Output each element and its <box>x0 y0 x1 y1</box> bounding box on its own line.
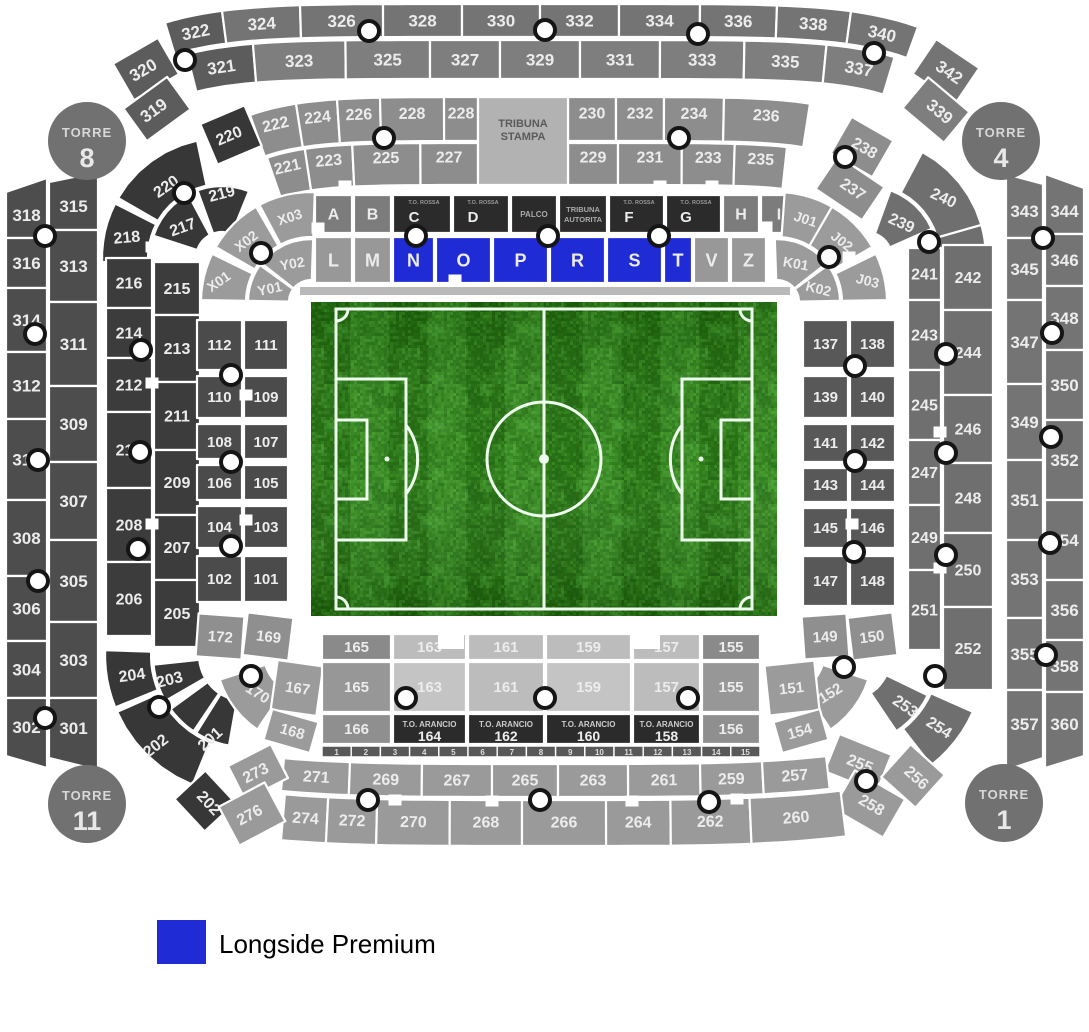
svg-text:163: 163 <box>417 679 442 696</box>
svg-text:143: 143 <box>813 477 838 494</box>
svg-text:M: M <box>365 250 380 270</box>
svg-text:211: 211 <box>164 409 190 426</box>
svg-text:335: 335 <box>771 52 800 72</box>
svg-text:229: 229 <box>580 150 607 167</box>
svg-text:205: 205 <box>164 606 191 623</box>
svg-text:2: 2 <box>364 748 369 757</box>
svg-text:325: 325 <box>373 50 401 69</box>
svg-text:159: 159 <box>576 679 601 696</box>
svg-text:TORRE: TORRE <box>62 125 112 140</box>
svg-text:224: 224 <box>303 108 331 128</box>
svg-text:167: 167 <box>284 679 311 699</box>
svg-text:270: 270 <box>400 814 427 831</box>
svg-text:245: 245 <box>911 398 938 415</box>
svg-text:139: 139 <box>813 389 838 406</box>
svg-text:324: 324 <box>247 14 277 35</box>
svg-text:327: 327 <box>451 51 479 70</box>
svg-text:227: 227 <box>436 150 463 167</box>
svg-text:PALCO: PALCO <box>520 210 547 219</box>
svg-text:228: 228 <box>399 106 426 123</box>
svg-text:330: 330 <box>487 12 515 31</box>
svg-text:248: 248 <box>955 491 982 508</box>
svg-text:218: 218 <box>113 228 141 247</box>
svg-text:1: 1 <box>996 805 1011 835</box>
svg-text:145: 145 <box>813 520 838 537</box>
svg-text:TORRE: TORRE <box>976 125 1026 140</box>
svg-text:347: 347 <box>1010 333 1038 352</box>
svg-text:106: 106 <box>207 475 232 492</box>
svg-text:309: 309 <box>59 415 87 434</box>
svg-text:TRIBUNA: TRIBUNA <box>498 118 548 130</box>
svg-text:247: 247 <box>911 465 938 482</box>
svg-text:360: 360 <box>1050 715 1078 734</box>
svg-text:329: 329 <box>526 51 554 70</box>
svg-text:312: 312 <box>12 376 40 395</box>
svg-text:8: 8 <box>79 143 94 173</box>
svg-text:306: 306 <box>12 600 40 619</box>
svg-text:147: 147 <box>813 573 838 590</box>
svg-text:TORRE: TORRE <box>62 788 112 803</box>
svg-text:R: R <box>571 250 584 270</box>
svg-text:334: 334 <box>645 12 674 31</box>
svg-text:155: 155 <box>718 639 743 656</box>
svg-text:T: T <box>673 250 684 270</box>
svg-text:268: 268 <box>473 815 500 832</box>
svg-text:225: 225 <box>373 150 400 168</box>
svg-text:216: 216 <box>116 276 143 293</box>
svg-text:215: 215 <box>164 281 191 298</box>
svg-text:235: 235 <box>747 151 775 170</box>
svg-text:T.O. ROSSA: T.O. ROSSA <box>623 200 654 206</box>
svg-text:T.O. ROSSA: T.O. ROSSA <box>408 200 439 206</box>
svg-text:326: 326 <box>327 12 356 31</box>
svg-text:TRIBUNA: TRIBUNA <box>566 205 600 214</box>
svg-text:344: 344 <box>1050 202 1079 221</box>
svg-text:313: 313 <box>59 257 87 276</box>
svg-text:357: 357 <box>1010 715 1038 734</box>
svg-text:208: 208 <box>116 518 143 535</box>
svg-text:138: 138 <box>860 336 885 353</box>
svg-text:150: 150 <box>858 627 885 647</box>
svg-text:266: 266 <box>551 815 578 832</box>
svg-text:274: 274 <box>292 810 320 829</box>
svg-text:243: 243 <box>911 328 938 345</box>
svg-text:10: 10 <box>595 748 604 757</box>
svg-text:AUTORITA: AUTORITA <box>564 215 603 224</box>
svg-text:261: 261 <box>651 772 678 789</box>
svg-text:I: I <box>777 207 781 224</box>
svg-text:7: 7 <box>510 748 515 757</box>
svg-text:112: 112 <box>207 337 231 354</box>
svg-text:105: 105 <box>253 475 278 492</box>
svg-text:352: 352 <box>1050 451 1078 470</box>
svg-text:250: 250 <box>955 563 982 580</box>
svg-text:137: 137 <box>813 336 838 353</box>
svg-text:252: 252 <box>955 641 982 658</box>
svg-text:165: 165 <box>344 639 369 656</box>
svg-text:333: 333 <box>688 51 716 70</box>
svg-text:6: 6 <box>480 748 485 757</box>
svg-text:305: 305 <box>59 572 87 591</box>
svg-text:111: 111 <box>254 337 277 354</box>
svg-text:231: 231 <box>637 150 664 167</box>
svg-text:108: 108 <box>207 434 232 451</box>
svg-text:14: 14 <box>712 748 721 757</box>
svg-text:P: P <box>514 250 526 270</box>
svg-text:272: 272 <box>339 812 366 830</box>
svg-text:353: 353 <box>1010 570 1038 589</box>
svg-text:101: 101 <box>253 571 278 588</box>
svg-text:TORRE: TORRE <box>979 787 1029 802</box>
svg-text:9: 9 <box>568 748 573 757</box>
svg-text:155: 155 <box>718 679 743 696</box>
svg-text:303: 303 <box>59 651 87 670</box>
svg-text:169: 169 <box>255 627 282 647</box>
svg-text:301: 301 <box>59 719 87 738</box>
svg-text:350: 350 <box>1050 376 1078 395</box>
svg-text:212: 212 <box>116 378 143 395</box>
svg-text:107: 107 <box>253 434 278 451</box>
svg-text:356: 356 <box>1050 601 1078 620</box>
svg-text:246: 246 <box>955 422 982 439</box>
svg-text:213: 213 <box>164 341 191 358</box>
svg-text:4: 4 <box>422 748 427 757</box>
svg-text:311: 311 <box>60 335 87 354</box>
svg-text:4: 4 <box>993 143 1008 173</box>
svg-text:226: 226 <box>345 106 372 124</box>
svg-text:260: 260 <box>782 809 810 828</box>
svg-text:304: 304 <box>12 661 41 680</box>
svg-text:H: H <box>735 207 747 224</box>
svg-text:102: 102 <box>207 571 232 588</box>
svg-text:104: 104 <box>207 519 233 536</box>
svg-text:11: 11 <box>73 806 102 836</box>
svg-text:140: 140 <box>860 389 885 406</box>
svg-text:161: 161 <box>493 639 518 656</box>
svg-text:264: 264 <box>625 814 652 831</box>
svg-text:Z: Z <box>743 250 754 270</box>
svg-text:A: A <box>328 207 340 224</box>
svg-text:T.O. ROSSA: T.O. ROSSA <box>467 200 498 206</box>
svg-text:1: 1 <box>334 748 339 757</box>
svg-text:141: 141 <box>813 435 838 452</box>
svg-text:323: 323 <box>285 51 314 71</box>
svg-text:249: 249 <box>911 530 938 547</box>
svg-text:207: 207 <box>164 540 191 557</box>
svg-text:267: 267 <box>444 772 471 789</box>
svg-text:269: 269 <box>372 772 399 790</box>
svg-text:262: 262 <box>697 813 724 831</box>
svg-text:N: N <box>407 250 420 270</box>
svg-text:209: 209 <box>164 475 191 492</box>
svg-text:318: 318 <box>12 206 40 225</box>
svg-text:263: 263 <box>580 773 607 790</box>
svg-text:328: 328 <box>408 12 436 31</box>
svg-text:271: 271 <box>302 768 330 787</box>
svg-text:3: 3 <box>393 748 398 757</box>
svg-text:G: G <box>680 209 692 226</box>
svg-text:230: 230 <box>579 106 606 123</box>
svg-text:11: 11 <box>624 748 633 757</box>
svg-text:251: 251 <box>911 603 938 620</box>
svg-text:265: 265 <box>512 773 539 790</box>
svg-text:S: S <box>628 250 640 270</box>
svg-text:164: 164 <box>418 728 442 744</box>
svg-text:349: 349 <box>1010 413 1038 432</box>
svg-text:346: 346 <box>1050 251 1078 270</box>
svg-text:166: 166 <box>344 721 369 738</box>
svg-text:315: 315 <box>59 197 87 216</box>
svg-text:259: 259 <box>718 771 745 789</box>
svg-text:257: 257 <box>781 767 809 786</box>
svg-text:103: 103 <box>253 519 278 536</box>
svg-text:307: 307 <box>59 492 87 511</box>
svg-text:148: 148 <box>860 573 885 590</box>
svg-text:232: 232 <box>627 106 654 123</box>
svg-text:15: 15 <box>741 748 750 757</box>
svg-text:161: 161 <box>493 679 518 696</box>
svg-text:L: L <box>328 250 339 270</box>
svg-text:144: 144 <box>860 477 886 494</box>
svg-text:223: 223 <box>315 152 343 171</box>
svg-text:8: 8 <box>539 748 544 757</box>
svg-text:332: 332 <box>565 12 593 31</box>
svg-text:156: 156 <box>718 721 743 738</box>
svg-text:5: 5 <box>451 748 456 757</box>
svg-text:158: 158 <box>655 728 679 744</box>
svg-text:234: 234 <box>681 106 708 123</box>
svg-text:206: 206 <box>116 592 143 609</box>
svg-text:172: 172 <box>207 628 233 647</box>
svg-text:T.O. ROSSA: T.O. ROSSA <box>680 200 711 206</box>
svg-text:162: 162 <box>494 728 518 744</box>
svg-text:338: 338 <box>798 14 828 35</box>
svg-text:C: C <box>409 209 420 226</box>
svg-text:236: 236 <box>752 107 780 126</box>
svg-text:12: 12 <box>653 748 662 757</box>
svg-text:316: 316 <box>12 254 40 273</box>
svg-text:157: 157 <box>654 679 679 696</box>
svg-text:242: 242 <box>955 270 982 287</box>
svg-text:336: 336 <box>724 12 753 31</box>
svg-text:160: 160 <box>577 728 601 744</box>
svg-text:146: 146 <box>860 520 885 537</box>
svg-text:V: V <box>705 250 717 270</box>
svg-text:228: 228 <box>448 106 475 123</box>
svg-text:331: 331 <box>606 51 634 70</box>
svg-text:F: F <box>624 209 633 226</box>
svg-text:233: 233 <box>695 150 722 167</box>
svg-text:Longside Premium: Longside Premium <box>219 929 436 959</box>
svg-text:165: 165 <box>344 679 369 696</box>
svg-text:109: 109 <box>253 389 278 406</box>
svg-text:13: 13 <box>683 748 692 757</box>
svg-text:110: 110 <box>207 389 231 406</box>
svg-text:STAMPA: STAMPA <box>501 131 546 143</box>
svg-text:343: 343 <box>1010 202 1038 221</box>
svg-text:241: 241 <box>911 267 938 284</box>
svg-text:142: 142 <box>860 435 885 452</box>
svg-text:D: D <box>468 209 479 226</box>
svg-text:244: 244 <box>955 345 982 362</box>
svg-text:308: 308 <box>12 529 40 548</box>
svg-text:149: 149 <box>812 628 838 647</box>
svg-text:O: O <box>456 250 470 270</box>
svg-text:B: B <box>367 207 379 224</box>
svg-text:351: 351 <box>1010 491 1038 510</box>
svg-text:345: 345 <box>1010 260 1038 279</box>
svg-text:159: 159 <box>576 639 601 656</box>
svg-text:151: 151 <box>778 679 805 699</box>
